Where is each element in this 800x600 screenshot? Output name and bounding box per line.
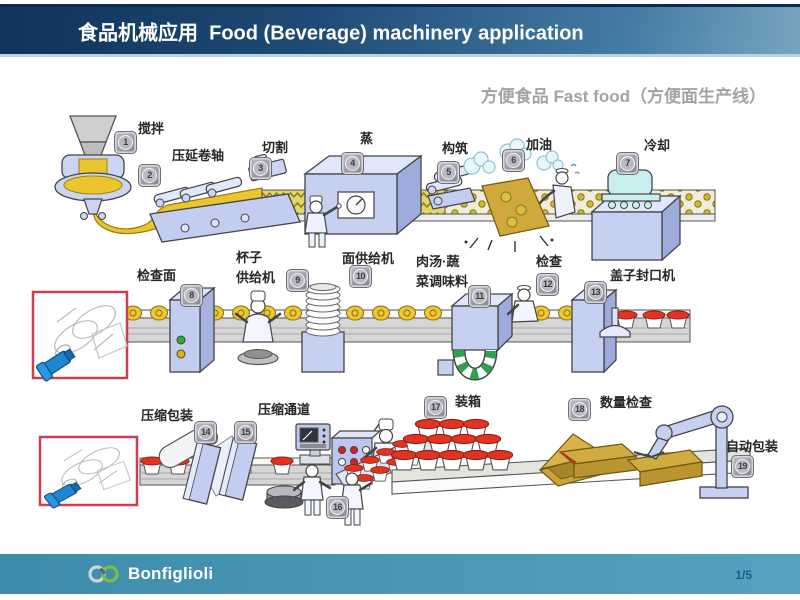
page-number: 1/5 xyxy=(735,568,752,582)
station-badge-18: 18 xyxy=(568,398,591,421)
station-badge-5: 5 xyxy=(437,161,460,184)
station-badge-16: 16 xyxy=(326,496,349,519)
station-badge-14: 14 xyxy=(194,421,217,444)
logo-text: Bonfiglioli xyxy=(128,564,213,584)
station-label-6: 加油 xyxy=(526,135,552,155)
stacked-cups xyxy=(391,419,512,470)
station-label-7: 冷却 xyxy=(644,136,670,156)
slide: 食品机械应用 Food (Beverage) machinery applica… xyxy=(0,0,800,600)
station-badge-12: 12 xyxy=(536,273,559,296)
station-label-8: 检查面 xyxy=(137,266,176,286)
gearmotor-callout-1 xyxy=(33,292,127,382)
station-label-10: 面供给机 xyxy=(342,249,394,269)
line-bottom xyxy=(140,406,750,525)
bonfiglioli-rings-icon xyxy=(86,563,122,585)
gearmotor-callout-2 xyxy=(40,437,137,508)
cooling-station xyxy=(592,170,680,260)
station-badge-1: 1 xyxy=(114,131,137,154)
slide-header-bar: 食品机械应用 Food (Beverage) machinery applica… xyxy=(0,4,800,57)
station-badge-4: 4 xyxy=(341,152,364,175)
station-badge-19: 19 xyxy=(731,455,754,478)
station-label-3: 切割 xyxy=(262,138,288,158)
pot xyxy=(265,486,303,508)
station-label-17: 装箱 xyxy=(455,392,481,412)
station-label-19: 自动包装 xyxy=(726,437,778,457)
monitor-station xyxy=(296,424,330,464)
station-badge-8: 8 xyxy=(180,284,203,307)
station-badge-7: 7 xyxy=(616,152,639,175)
station-badge-9: 9 xyxy=(286,269,309,292)
station-label-2: 压延卷轴 xyxy=(172,146,224,166)
station-label-9: 杯子 供给机 xyxy=(236,248,275,288)
station-label-1: 搅拌 xyxy=(138,119,164,139)
slide-subtitle: 方便食品 Fast food（方便面生产线） xyxy=(481,82,766,107)
station-badge-6: 6 xyxy=(502,149,525,172)
station-label-4: 蒸 xyxy=(360,129,373,149)
station-label-14: 压缩包装 xyxy=(141,406,193,426)
company-logo: Bonfiglioli xyxy=(86,563,213,585)
station-label-15: 压缩通道 xyxy=(258,400,310,420)
station-badge-3: 3 xyxy=(249,157,272,180)
station-label-5: 构筑 xyxy=(442,139,468,159)
station-badge-2: 2 xyxy=(138,164,161,187)
station-badge-11: 11 xyxy=(468,285,491,308)
station-badge-17: 17 xyxy=(424,396,447,419)
station-label-18: 数量检查 xyxy=(600,393,652,413)
station-badge-13: 13 xyxy=(584,281,607,304)
footer-bar: Bonfiglioli 1/5 xyxy=(0,554,800,594)
station-label-12: 检查 xyxy=(536,252,562,272)
station-label-13: 盖子封口机 xyxy=(610,266,675,286)
station-label-11: 肉汤·蔬 菜调味料 xyxy=(416,252,468,292)
station-badge-15: 15 xyxy=(234,421,257,444)
page-title: 食品机械应用 Food (Beverage) machinery applica… xyxy=(78,16,584,45)
cup-dispenser xyxy=(302,284,344,373)
